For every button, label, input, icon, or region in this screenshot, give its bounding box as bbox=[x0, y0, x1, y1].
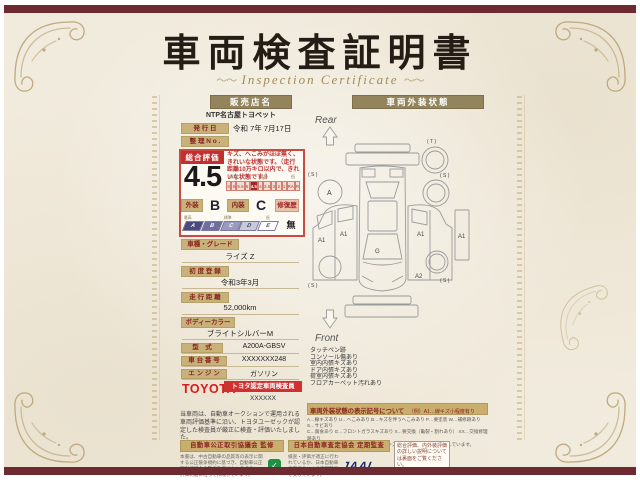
scale-label-low: 低 bbox=[291, 174, 295, 180]
condition-note: タッチペン跡 bbox=[310, 348, 382, 355]
interior-label: 内装 bbox=[227, 199, 249, 212]
exterior-condition-header-bar: 車両外装状態 bbox=[352, 95, 484, 109]
interior-grade: C bbox=[249, 197, 273, 213]
chassis-no-label: 車 台 番 号 bbox=[181, 356, 227, 366]
frame-top-bar bbox=[4, 5, 636, 13]
inspector-badge: トヨタ認定車両検査員 bbox=[224, 381, 302, 392]
scale-cell: 5.5 bbox=[236, 181, 244, 191]
tire-s-label: ( S ) bbox=[308, 283, 318, 289]
rear-direction-label: Rear bbox=[315, 115, 337, 126]
mileage-label: 走 行 距 離 bbox=[181, 292, 229, 303]
rating-scale-labels: 最高 標準 低 bbox=[227, 174, 300, 180]
legend-title: 車両外装状態の表示記号について bbox=[310, 408, 404, 415]
dealer-name: NTP名古屋トヨペット bbox=[179, 110, 303, 120]
condition-notes: タッチペン跡 コンソール傷あり 室内内張キズあり ドア内張キズあり 荷室内張キズ… bbox=[310, 348, 382, 388]
back-side-note-box: 総合評価、内外装評価の詳しい説明については裏面をご覧ください。 bbox=[394, 441, 450, 468]
chassis-no-value: XXXXXXX248 bbox=[228, 356, 300, 363]
issue-date-label: 発 行 日 bbox=[181, 123, 229, 134]
subtitle-decoration-right: ～～ bbox=[404, 75, 424, 87]
tire-s-label: ( S ) bbox=[440, 173, 450, 179]
corner-flourish-bottom-left bbox=[12, 390, 87, 465]
grade-row: 外装 B 内装 C 修復歴 bbox=[181, 195, 299, 215]
exterior-grade: B bbox=[203, 197, 227, 213]
symbol-legend-header: 車両外装状態の表示記号について （例）A1…線キズ小程度有り bbox=[307, 403, 488, 415]
scale-cell-selected: 4.5 bbox=[250, 181, 258, 191]
scale-cell: RA bbox=[287, 181, 295, 191]
divider bbox=[182, 339, 299, 340]
condition-note: 室内内張キズあり bbox=[310, 361, 382, 368]
certificate-subtitle: ～～ Inspection Certificate ～～ bbox=[0, 72, 640, 88]
tire-mark-a: A bbox=[327, 190, 332, 197]
scale-cell: R bbox=[295, 181, 300, 191]
dealer-header-bar: 販売店名 bbox=[210, 95, 292, 109]
model-code-value: A200A-GBSV bbox=[228, 343, 300, 350]
lace-line-right bbox=[524, 95, 525, 440]
body-color-value: ブライトシルバーM bbox=[179, 328, 301, 339]
divider bbox=[182, 262, 299, 263]
engine-label: エ ン ジ ン bbox=[181, 369, 227, 379]
lace-strip-left bbox=[152, 95, 157, 440]
mark-a1: A1 bbox=[417, 232, 425, 238]
grade-scale-row: A B C D E bbox=[184, 221, 278, 231]
car-outline: Rear Front bbox=[313, 115, 469, 344]
frame-bottom-bar bbox=[4, 467, 636, 475]
tire-s-label: ( S ) bbox=[308, 172, 318, 178]
inspector-id: XXXXXX bbox=[224, 395, 302, 402]
scale-label-high: 最高 bbox=[229, 174, 237, 180]
body-color-label: ボディーカラー bbox=[181, 317, 235, 328]
mark-a1: A1 bbox=[318, 238, 326, 244]
subtitle-text: Inspection Certificate bbox=[241, 72, 398, 87]
divider bbox=[182, 314, 299, 315]
disclaimer-text: 当車両は、自動車オークションで運用される車両評価基準に沿い、トヨタユーゼックが認… bbox=[180, 412, 302, 443]
certificate-title: 車両検査証明書 bbox=[0, 22, 640, 77]
legend-line: A…線キズあり U…へこみあり B…キズを伴うへこみあり P…要塗装 W…補修跡… bbox=[307, 417, 488, 429]
rating-score: 4.5 bbox=[180, 161, 225, 194]
repair-history-label: 修復歴 bbox=[275, 199, 299, 212]
tire-s-label: ( S ) bbox=[440, 278, 450, 284]
first-registration-label: 初 度 登 録 bbox=[181, 266, 229, 277]
divider bbox=[182, 366, 299, 367]
fair-trade-header: 自動車公正取引協議会 監修 bbox=[180, 440, 284, 452]
divider bbox=[182, 379, 299, 380]
engine-value: ガソリン bbox=[228, 369, 300, 379]
repair-history-value: 無 bbox=[282, 218, 300, 231]
first-registration-value: 令和3年3月 bbox=[179, 277, 301, 288]
mark-a1: A1 bbox=[340, 232, 348, 238]
ref-no-label: 整 理 N o . bbox=[181, 136, 229, 147]
mark-a2: A2 bbox=[415, 274, 423, 280]
lace-line-left bbox=[159, 95, 160, 440]
scale-label-mid: 標準 bbox=[259, 174, 267, 180]
condition-note: 荷室内張キズあり bbox=[310, 374, 382, 381]
condition-note: フロアカーペット汚れあり bbox=[310, 381, 382, 388]
issue-date-value: 令和 7年 7月17日 bbox=[233, 123, 291, 134]
mark-a1: A1 bbox=[458, 234, 466, 240]
divider bbox=[182, 353, 299, 354]
subtitle-decoration-left: ～～ bbox=[216, 75, 236, 87]
mileage-value: 52,000km bbox=[179, 303, 301, 312]
exterior-label: 外装 bbox=[181, 199, 203, 212]
model-grade-value: ライズ Z bbox=[179, 251, 301, 262]
corner-flourish-bottom-right bbox=[553, 390, 628, 465]
divider bbox=[182, 288, 299, 289]
scale-cell: 3.5 bbox=[263, 181, 271, 191]
jaai-header: 日本自動車査定協会 定期監査 bbox=[288, 440, 390, 452]
model-grade-label: 車種・グレード bbox=[181, 239, 239, 250]
lace-strip-right bbox=[517, 95, 522, 440]
grade-scale-cell: E bbox=[257, 221, 279, 231]
rating-scale-row: S 6 5.5 5 4.5 4 3.5 3 2 1 RA R bbox=[226, 181, 300, 191]
car-exterior-diagram: Rear Front bbox=[305, 110, 490, 347]
spare-t-label: ( T ) bbox=[427, 139, 436, 145]
mark-glass: G bbox=[375, 249, 380, 255]
model-code-label: 型 式 bbox=[181, 343, 223, 353]
front-direction-label: Front bbox=[315, 333, 340, 344]
